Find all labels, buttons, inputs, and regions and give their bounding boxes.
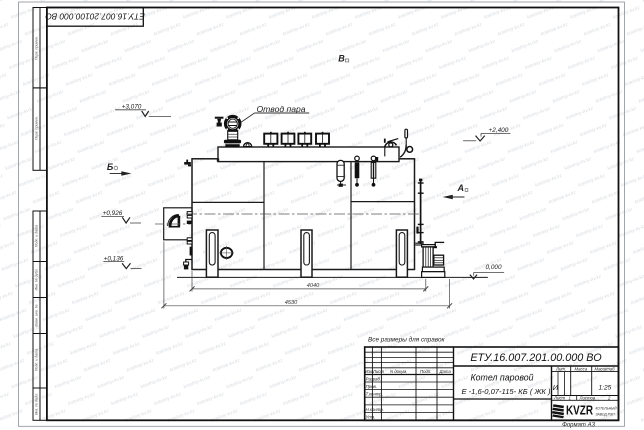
svg-text:Т.контр.: Т.контр. (366, 392, 383, 397)
svg-text:Б: Б (107, 162, 114, 172)
svg-text:КОТЕЛЬНЫЙ: КОТЕЛЬНЫЙ (596, 407, 617, 411)
svg-text:Лит.: Лит. (555, 367, 566, 372)
svg-text:Е -1,6-0,07-115- КБ ( ЖК ): Е -1,6-0,07-115- КБ ( ЖК ) (461, 387, 551, 396)
svg-text:Перв. примен.: Перв. примен. (35, 116, 39, 140)
svg-text:Перв. примен.: Перв. примен. (35, 36, 39, 60)
svg-text:Лист: Лист (553, 396, 565, 401)
svg-text:+3,070: +3,070 (122, 103, 142, 110)
svg-text:А: А (457, 183, 465, 193)
svg-text:И: И (553, 383, 559, 392)
svg-text:Лист: Лист (372, 369, 384, 374)
svg-text:В: В (338, 54, 345, 64)
svg-text:Дата: Дата (439, 369, 452, 374)
svg-text:+2,400: +2,400 (489, 127, 509, 134)
svg-text:Масштаб: Масштаб (595, 367, 616, 372)
svg-text:Формат А3: Формат А3 (562, 423, 595, 429)
svg-text:Котел паровой: Котел паровой (470, 373, 533, 383)
svg-text:Утв.: Утв. (366, 415, 376, 420)
svg-text:KVZR: KVZR (566, 403, 593, 418)
svg-text:N докум.: N докум. (390, 369, 407, 374)
svg-text:ЕТУ.16.007.20100.000 ВО: ЕТУ.16.007.20100.000 ВО (45, 12, 145, 22)
svg-text:Пров.: Пров. (366, 384, 377, 389)
svg-text:4040: 4040 (307, 283, 320, 289)
svg-text:ЗАВОД РЭП: ЗАВОД РЭП (596, 413, 615, 417)
svg-text:ЕТУ.16.007.201.00.000 ВО: ЕТУ.16.007.201.00.000 ВО (470, 352, 602, 364)
svg-text:Инв. № подл.: Инв. № подл. (35, 393, 39, 415)
svg-text:Отвод пара: Отвод пара (256, 104, 305, 114)
svg-text:Инв. № дубл.: Инв. № дубл. (35, 268, 39, 290)
svg-text:Подп. и дата: Подп. и дата (35, 349, 39, 372)
svg-text:Взам. инв. №: Взам. инв. № (35, 304, 39, 326)
svg-text:Масса: Масса (575, 367, 588, 372)
svg-text:1:25: 1:25 (599, 385, 612, 392)
svg-text:Все размеры для справок: Все размеры для справок (368, 336, 446, 344)
svg-text:Н.контр.: Н.контр. (366, 407, 384, 412)
svg-text:+0,926: +0,926 (103, 210, 123, 217)
svg-text:Подп.: Подп. (420, 369, 431, 374)
svg-text:0,000: 0,000 (486, 264, 502, 271)
svg-text:Разраб.: Разраб. (366, 376, 382, 381)
svg-text:Подп. и дата: Подп. и дата (35, 225, 39, 248)
svg-text:Листов: Листов (579, 396, 596, 401)
svg-text:4530: 4530 (285, 300, 298, 306)
